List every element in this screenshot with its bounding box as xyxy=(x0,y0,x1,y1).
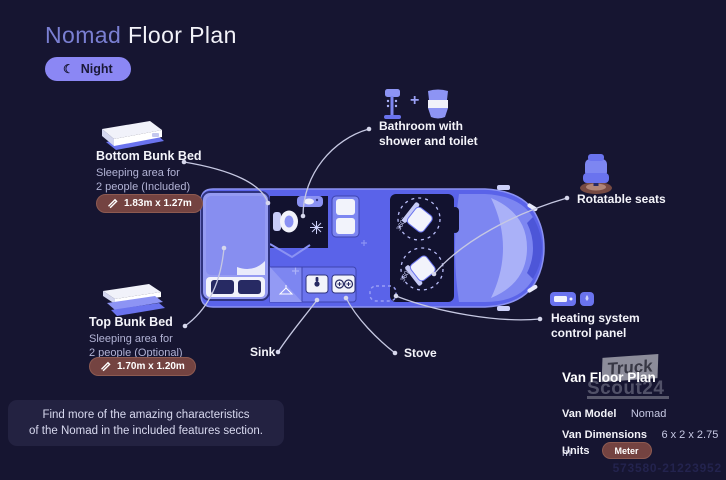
reference-number: 573580-21223952 xyxy=(613,461,722,475)
van-dimensions-label: Van Dimensions xyxy=(562,429,647,441)
bathroom-area xyxy=(270,196,328,257)
bathroom-label: Bathroom with shower and toilet xyxy=(379,119,478,148)
bottom-bunk-title: Bottom Bunk Bed xyxy=(96,150,202,164)
top-bunk-title: Top Bunk Bed xyxy=(89,316,173,330)
sink-label: Sink xyxy=(250,345,275,360)
page-title-rest: Floor Plan xyxy=(128,22,237,48)
night-mode-label: Night xyxy=(81,62,113,76)
kitchen-counter xyxy=(270,267,356,302)
bottom-bunk-desc: Sleeping area for 2 people (Included) xyxy=(96,166,190,194)
van-info-row-model: Van Model Nomad xyxy=(562,404,666,422)
van-floor-plan: 360° 360° xyxy=(193,181,545,315)
rotatable-seat-icon xyxy=(577,153,615,195)
van-model-value: Nomad xyxy=(631,408,666,420)
toilet-plan xyxy=(273,211,298,233)
night-mode-toggle[interactable]: ☾ Night xyxy=(45,57,131,81)
rotatable-seats-label: Rotatable seats xyxy=(577,192,666,207)
heating-label: Heating system control panel xyxy=(551,311,640,340)
bed-plan xyxy=(202,192,269,300)
page-title-accent: Nomad xyxy=(45,22,121,48)
footer-note: Find more of the amazing characteristics… xyxy=(8,400,284,446)
units-label: Units xyxy=(562,445,590,457)
plus-icon: + xyxy=(410,92,419,110)
van-info-row-units: Units Meter xyxy=(562,442,652,459)
steering-wheel xyxy=(451,207,459,233)
top-bunk-desc: Sleeping area for 2 people (Optional) xyxy=(89,332,183,360)
toilet-icon xyxy=(424,88,452,120)
van-info-title: Van Floor Plan xyxy=(562,370,656,385)
top-bunk-dimensions-badge: 1.70m x 1.20m xyxy=(89,357,196,376)
top-bunk-bed-icon xyxy=(99,281,165,317)
bottom-bunk-bed-icon xyxy=(96,116,166,152)
dinette-bench xyxy=(332,196,359,237)
pencil-icon xyxy=(100,361,111,372)
bottom-bunk-dimensions-badge: 1.83m x 1.27m xyxy=(96,194,203,213)
stove-plan xyxy=(332,275,355,293)
watermark-underline xyxy=(587,396,669,399)
moon-icon: ☾ xyxy=(63,63,74,75)
pencil-icon xyxy=(107,198,118,209)
stove-label: Stove xyxy=(404,346,437,361)
side-mirror-bottom xyxy=(497,306,510,311)
shower-icon xyxy=(383,86,409,122)
page-title: Nomad Floor Plan xyxy=(45,22,237,49)
heating-panel-icon xyxy=(550,291,594,307)
sink-plan xyxy=(306,275,328,293)
van-model-label: Van Model xyxy=(562,408,616,420)
floor-plan-infographic: Nomad Floor Plan ☾ Night xyxy=(0,0,726,480)
units-meter-badge[interactable]: Meter xyxy=(602,442,652,459)
side-mirror-top xyxy=(497,185,510,190)
